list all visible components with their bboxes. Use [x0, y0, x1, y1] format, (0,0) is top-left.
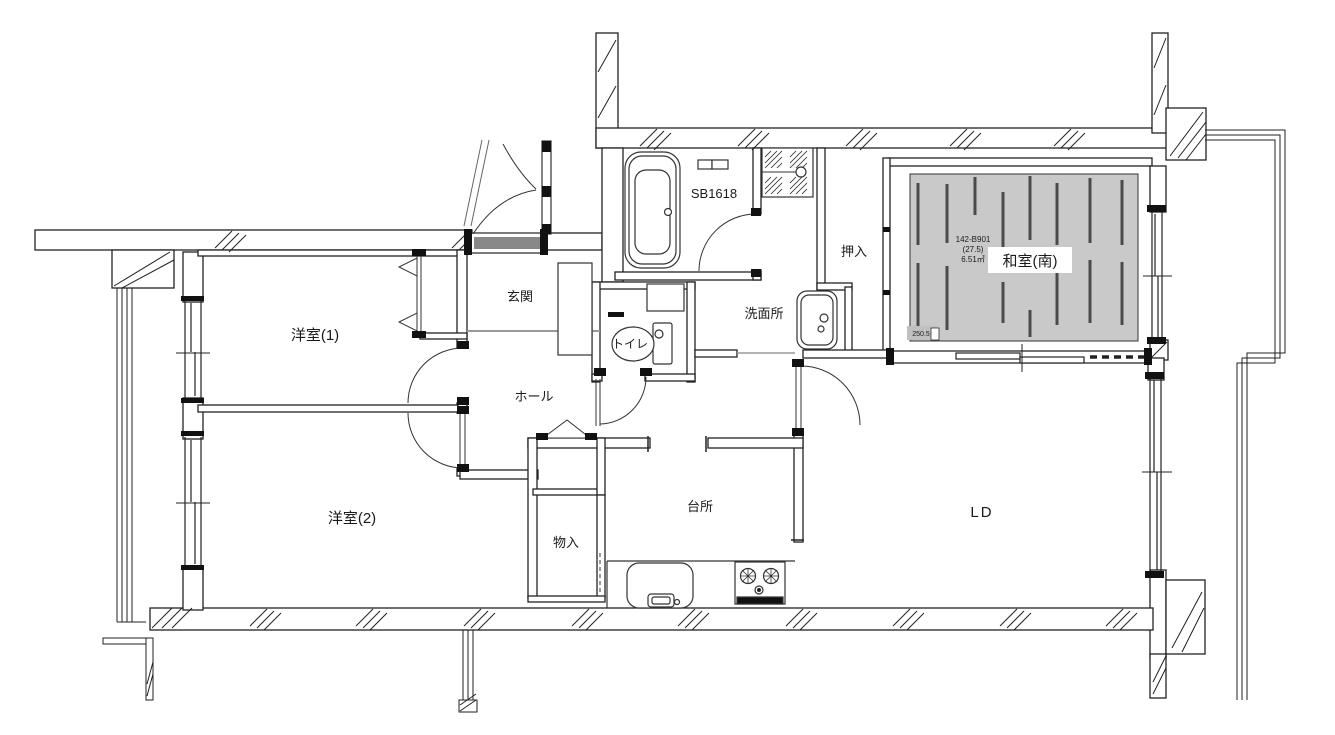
entrance-door-arc-main: [473, 190, 536, 234]
door-arc-ld: [801, 366, 860, 425]
door-panel-toilet: [596, 379, 600, 426]
window-japanese-south-sliding: [890, 344, 1150, 372]
kitchen-sink: [627, 563, 693, 608]
window-western1: [176, 300, 210, 398]
storage-folding-door: [543, 420, 590, 438]
room-label-kitchen: 台所: [687, 499, 713, 514]
floorplan-canvas: 洋室(1) 洋室(2) 玄関 ホール トイレ SB1618 洗面所 押入 和室(…: [0, 0, 1335, 735]
closet1-folding-door: [399, 256, 421, 332]
balcony-south: [103, 630, 1150, 712]
label-bath-unit: SB1618: [691, 186, 737, 201]
shoe-cabinet: [558, 263, 592, 355]
door-panel-western2: [460, 410, 465, 466]
wall-end-caps: [648, 436, 804, 540]
door-arc-toilet: [600, 377, 646, 424]
entrance-door-arc-child: [503, 144, 536, 189]
room-label-hall: ホール: [514, 389, 553, 404]
door-arc-bath: [699, 214, 756, 271]
room-label-western1: 洋室(1): [291, 327, 339, 344]
window-japanese-east: [1143, 212, 1172, 340]
annotation-area-m2: 6.51㎡: [961, 255, 985, 264]
kitchen-stove: [735, 562, 785, 604]
room-label-washroom: 洗面所: [744, 306, 783, 321]
room-label-storage: 物入: [553, 535, 579, 550]
room-label-japanese: 和室(南): [1003, 253, 1058, 270]
room-label-toilet: トイレ: [612, 337, 648, 351]
window-western2: [176, 437, 210, 566]
door-panel-ld: [796, 366, 801, 432]
room-label-living-dining: LD: [970, 504, 993, 521]
bathtub: [625, 152, 728, 268]
pipe-shaft: [762, 148, 813, 197]
room-label-western2: 洋室(2): [328, 510, 376, 527]
washbasin: [797, 291, 837, 349]
annotation-area-tsubo: (27.5): [963, 245, 984, 254]
room-label-entrance: 玄関: [507, 289, 533, 304]
room-label-closet: 押入: [841, 244, 867, 259]
annotation-unit-code: 142-B901: [956, 235, 991, 244]
balcony-left-railing: [117, 288, 146, 622]
entrance-door: [468, 141, 551, 253]
wall-south-band: [150, 608, 1153, 630]
toilet-fixture: [612, 284, 684, 364]
door-arc-western1: [408, 348, 463, 403]
floorplan-drawing: 洋室(1) 洋室(2) 玄関 ホール トイレ SB1618 洗面所 押入 和室(…: [0, 0, 1335, 735]
walls: [35, 33, 1206, 698]
annotation-dimension: 250.5: [912, 331, 930, 338]
balcony-right-railing: [1205, 130, 1285, 700]
wall-north-west-band: [35, 230, 472, 250]
door-arc-western2: [408, 413, 463, 468]
bath-counter: [698, 160, 712, 169]
wall-north-band: [596, 128, 1168, 148]
window-ld-east: [1142, 378, 1172, 572]
kitchen-counter: [607, 561, 795, 608]
